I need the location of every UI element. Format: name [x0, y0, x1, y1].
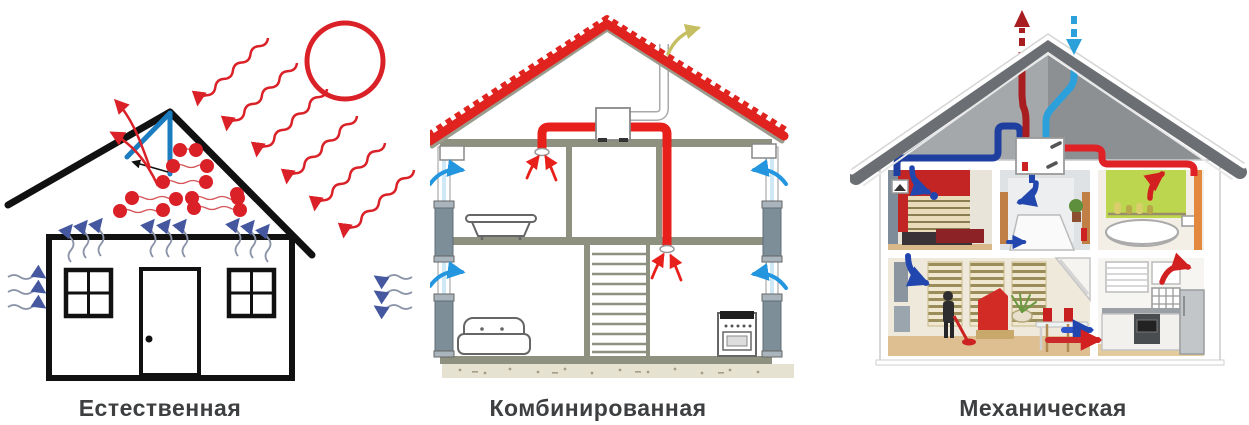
natural-ventilation-diagram	[0, 0, 420, 392]
exhaust-air-arrow-yellow	[668, 28, 698, 54]
kitchen	[1098, 258, 1204, 356]
bathroom	[1098, 170, 1204, 250]
attic-exhaust-fan-unit	[596, 108, 630, 142]
window-infiltration-arrows-left	[8, 275, 44, 309]
sun-icon	[307, 23, 383, 99]
exhaust-outlet-arrow-red	[1014, 10, 1030, 46]
bathtub	[466, 215, 536, 240]
sofa	[458, 318, 530, 354]
panel-label-combined: Комбинированная	[430, 395, 766, 422]
hallway	[1000, 170, 1090, 250]
panel-mechanical-ventilation: Механическая	[850, 0, 1249, 425]
ground-gravel	[442, 364, 794, 378]
orange-riser-duct	[1194, 170, 1202, 250]
window-infiltration-arrows-right	[376, 275, 412, 309]
four-pane-window-right	[229, 270, 274, 316]
combined-ventilation-diagram	[430, 0, 820, 392]
heat-recovery-unit	[1016, 138, 1064, 174]
four-pane-window-left	[66, 270, 111, 316]
ventilation-types-figure: Естественная	[0, 0, 1249, 425]
stove	[718, 311, 756, 356]
floor-extract-diffuser-lower	[660, 246, 674, 253]
mechanical-ventilation-diagram	[850, 0, 1249, 392]
foundation-line	[876, 360, 1224, 365]
front-door	[141, 269, 199, 375]
staircase	[584, 245, 650, 356]
bedroom	[888, 170, 992, 250]
panel-label-mechanical: Механическая	[850, 395, 1236, 422]
panel-label-natural: Естественная	[0, 395, 320, 422]
panel-natural-ventilation: Естественная	[0, 0, 420, 425]
ceiling-extract-diffuser-upper	[535, 149, 549, 156]
panel-combined-ventilation: Комбинированная	[430, 0, 820, 425]
